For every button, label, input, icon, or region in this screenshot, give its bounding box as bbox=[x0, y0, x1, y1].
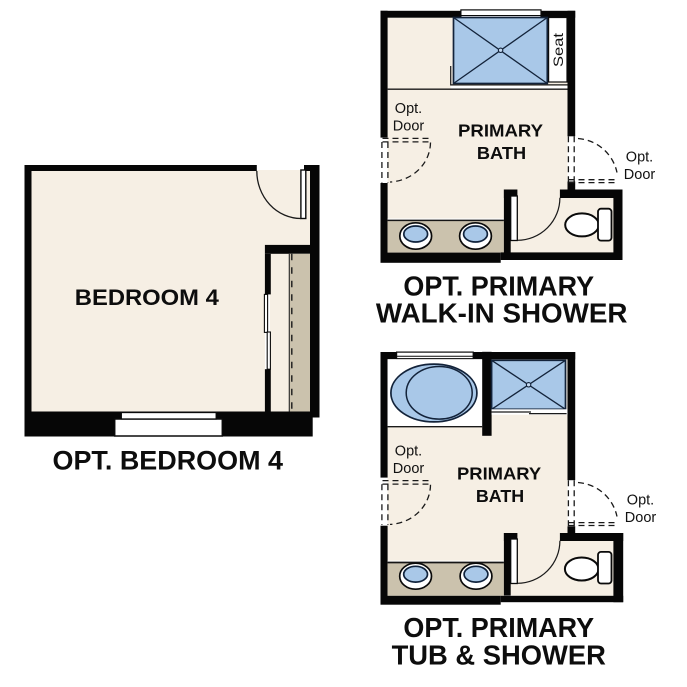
svg-text:Seat: Seat bbox=[550, 33, 566, 67]
svg-text:BATH: BATH bbox=[477, 143, 526, 163]
svg-text:BATH: BATH bbox=[476, 486, 524, 506]
svg-text:Opt.: Opt. bbox=[626, 149, 653, 165]
svg-text:Door: Door bbox=[393, 118, 425, 134]
svg-text:Opt.: Opt. bbox=[627, 492, 654, 508]
svg-text:PRIMARY: PRIMARY bbox=[458, 121, 543, 141]
svg-text:Door: Door bbox=[624, 167, 656, 183]
svg-text:BEDROOM 4: BEDROOM 4 bbox=[75, 285, 220, 310]
svg-text:PRIMARY: PRIMARY bbox=[457, 463, 542, 483]
svg-text:Door: Door bbox=[393, 461, 425, 477]
svg-text:OPT. PRIMARY: OPT. PRIMARY bbox=[403, 270, 594, 301]
svg-text:TUB & SHOWER: TUB & SHOWER bbox=[392, 640, 606, 671]
svg-text:OPT. PRIMARY: OPT. PRIMARY bbox=[403, 612, 594, 643]
svg-text:WALK-IN SHOWER: WALK-IN SHOWER bbox=[376, 298, 628, 329]
svg-text:Opt.: Opt. bbox=[395, 443, 422, 459]
svg-text:OPT. BEDROOM 4: OPT. BEDROOM 4 bbox=[53, 446, 284, 476]
svg-text:Opt.: Opt. bbox=[395, 101, 422, 117]
svg-text:Door: Door bbox=[625, 510, 657, 526]
